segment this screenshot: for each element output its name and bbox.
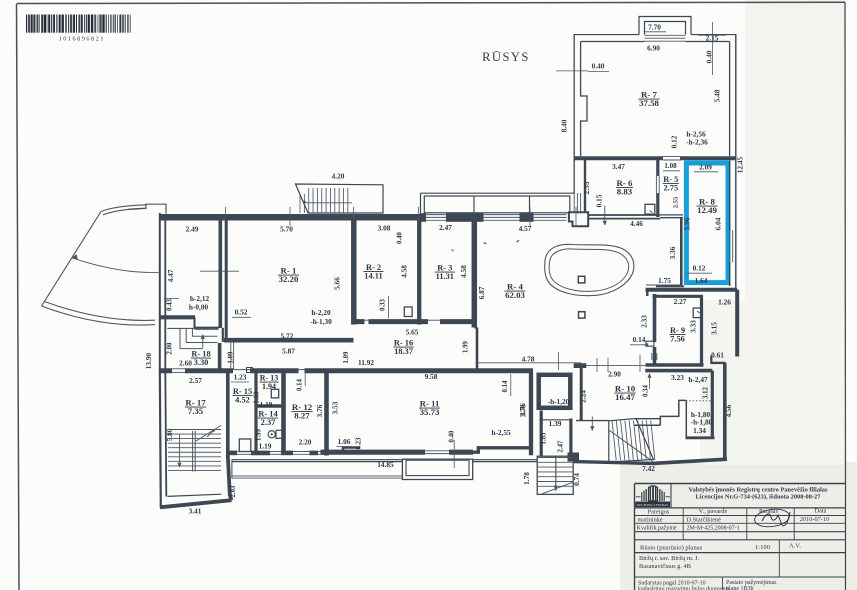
svg-text:1.06: 1.06 xyxy=(338,437,351,446)
svg-text:3.30: 3.30 xyxy=(194,358,209,367)
svg-text:0.33: 0.33 xyxy=(380,298,387,310)
svg-text:7.42: 7.42 xyxy=(642,464,655,473)
svg-text:0.23: 0.23 xyxy=(356,437,363,449)
svg-text:Pareigos: Pareigos xyxy=(648,509,670,516)
svg-text:V., pavardė: V., pavardė xyxy=(699,508,728,515)
svg-text:3.53: 3.53 xyxy=(330,401,339,414)
svg-text:5.87: 5.87 xyxy=(282,347,295,356)
svg-text:3.33: 3.33 xyxy=(689,320,698,333)
svg-text:1.09: 1.09 xyxy=(343,351,350,363)
svg-text:-h-1,30: -h-1,30 xyxy=(310,317,332,326)
svg-text:1.19: 1.19 xyxy=(259,442,272,451)
svg-text:1.75: 1.75 xyxy=(658,276,671,285)
svg-text:-h-2,36: -h-2,36 xyxy=(686,138,708,147)
svg-text:3.47: 3.47 xyxy=(612,162,625,171)
svg-text:Licencijos Nr.G-734-(623), išd: Licencijos Nr.G-734-(623), išduota 2008-… xyxy=(696,493,822,500)
svg-text:2.47: 2.47 xyxy=(558,440,565,452)
svg-text:Rūsio (pusrūsio) planas: Rūsio (pusrūsio) planas xyxy=(640,545,703,552)
svg-text:1.26: 1.26 xyxy=(718,298,731,307)
svg-text:7.70: 7.70 xyxy=(648,23,661,32)
svg-text:14.11: 14.11 xyxy=(364,272,382,281)
svg-text:3.08: 3.08 xyxy=(378,224,391,233)
svg-text:3.23: 3.23 xyxy=(671,373,684,382)
svg-text:5.48: 5.48 xyxy=(713,89,722,102)
svg-text:REGISTRŲ CENTRAS: REGISTRŲ CENTRAS xyxy=(637,503,668,507)
svg-text:5.70: 5.70 xyxy=(280,225,293,234)
svg-text:3.12: 3.12 xyxy=(703,386,710,398)
svg-text:4.56: 4.56 xyxy=(724,404,733,417)
svg-text:0.40: 0.40 xyxy=(592,62,605,71)
svg-text:7.35: 7.35 xyxy=(188,406,204,416)
svg-text:0.61: 0.61 xyxy=(711,351,724,360)
svg-text:2.37: 2.37 xyxy=(261,418,276,427)
svg-text:35.73: 35.73 xyxy=(420,407,440,417)
svg-text:2.20: 2.20 xyxy=(299,438,312,447)
svg-text:A.V.: A.V. xyxy=(789,543,801,550)
svg-text:4.52: 4.52 xyxy=(235,396,250,405)
svg-text:32.20: 32.20 xyxy=(279,274,299,284)
svg-text:2010-07-10: 2010-07-10 xyxy=(800,516,829,523)
svg-text:1.78: 1.78 xyxy=(522,472,531,485)
svg-text:1.34: 1.34 xyxy=(693,426,706,435)
svg-text:0.14: 0.14 xyxy=(297,378,304,390)
svg-text:3.36: 3.36 xyxy=(668,246,677,259)
svg-text:6.90: 6.90 xyxy=(647,44,660,53)
svg-text:2.03: 2.03 xyxy=(230,485,237,497)
svg-text:Biržų r. sav. Biržų m. J.: Biržų r. sav. Biržų m. J. xyxy=(639,555,700,562)
svg-text:1.08: 1.08 xyxy=(664,162,677,170)
svg-text:2.57: 2.57 xyxy=(189,376,202,385)
svg-text:0.14: 0.14 xyxy=(502,380,509,392)
svg-text:11.92: 11.92 xyxy=(358,358,374,367)
svg-text:2.33: 2.33 xyxy=(640,315,649,328)
svg-text:1.23: 1.23 xyxy=(234,373,247,382)
svg-text:2.27: 2.27 xyxy=(674,297,687,306)
svg-text:matininkė: matininkė xyxy=(638,516,663,523)
svg-text:0.52: 0.52 xyxy=(235,308,248,317)
svg-text:0.15: 0.15 xyxy=(595,194,604,207)
svg-text:0.12: 0.12 xyxy=(670,135,679,148)
svg-text:2.75: 2.75 xyxy=(663,184,678,193)
svg-text:-h-1,20: -h-1,20 xyxy=(548,397,570,406)
svg-text:2.90: 2.90 xyxy=(608,370,621,379)
svg-text:6.04: 6.04 xyxy=(714,217,723,230)
svg-text:3.76: 3.76 xyxy=(518,403,527,416)
svg-text:13.90: 13.90 xyxy=(144,352,153,369)
svg-text:2.49: 2.49 xyxy=(186,225,199,234)
svg-text:h-2,55: h-2,55 xyxy=(491,428,511,437)
svg-text:5.72: 5.72 xyxy=(281,332,294,341)
svg-text:2.60: 2.60 xyxy=(179,359,192,368)
svg-text:0.12: 0.12 xyxy=(693,264,706,273)
svg-text:h-2,20: h-2,20 xyxy=(311,308,331,317)
svg-text:4.58: 4.58 xyxy=(459,265,468,278)
svg-text:1 0 1 6 8 9 6 8 2 1: 1 0 1 6 8 9 6 8 2 1 xyxy=(59,36,104,43)
svg-text:18.37: 18.37 xyxy=(394,347,413,356)
svg-text:1.99: 1.99 xyxy=(256,428,263,440)
svg-text:5.65: 5.65 xyxy=(406,328,419,337)
svg-text:0.40: 0.40 xyxy=(397,231,404,243)
svg-text:5.96: 5.96 xyxy=(683,217,692,230)
svg-text:3.15: 3.15 xyxy=(710,322,719,335)
svg-text:11.31: 11.31 xyxy=(436,272,454,281)
svg-text:16.47: 16.47 xyxy=(615,392,635,402)
svg-text:7.56: 7.56 xyxy=(670,335,685,344)
svg-text:Kvalifik.pažymė: Kvalifik.pažymė xyxy=(637,524,677,531)
svg-text:8.27: 8.27 xyxy=(294,411,310,421)
svg-text:Data: Data xyxy=(815,508,827,515)
svg-text:0.74: 0.74 xyxy=(572,473,581,486)
svg-text:0.43: 0.43 xyxy=(166,298,173,310)
svg-text:12.49: 12.49 xyxy=(697,205,717,215)
svg-text:4.57: 4.57 xyxy=(519,224,532,233)
svg-text:plane 1B3b: plane 1B3b xyxy=(726,586,754,590)
svg-text:2.09: 2.09 xyxy=(699,163,712,172)
svg-text:RŪSYS: RŪSYS xyxy=(482,50,530,64)
svg-text:37.58: 37.58 xyxy=(639,98,659,108)
svg-text:2.24: 2.24 xyxy=(579,390,588,403)
svg-text:1.94: 1.94 xyxy=(262,382,276,391)
svg-text:4.47: 4.47 xyxy=(166,269,175,282)
svg-text:2.47: 2.47 xyxy=(439,223,452,232)
svg-text:D.Starčikienė: D.Starčikienė xyxy=(687,516,722,523)
svg-text:2M-M-425,2008-07-1: 2M-M-425,2008-07-1 xyxy=(687,525,740,531)
svg-text:8.83: 8.83 xyxy=(617,187,633,197)
svg-text:62.03: 62.03 xyxy=(505,290,525,300)
svg-text:1.85: 1.85 xyxy=(541,432,548,444)
svg-text:h-2,47: h-2,47 xyxy=(688,375,708,384)
svg-text:5.66: 5.66 xyxy=(333,277,342,290)
svg-text:1.39: 1.39 xyxy=(549,419,562,428)
svg-text:12.45: 12.45 xyxy=(736,156,745,173)
svg-text:1.99: 1.99 xyxy=(463,340,470,352)
svg-text:4.58: 4.58 xyxy=(400,265,409,278)
svg-text:9.58: 9.58 xyxy=(425,372,438,381)
svg-text:3.41: 3.41 xyxy=(189,507,202,516)
svg-text:1.19: 1.19 xyxy=(260,400,273,409)
svg-text:4.78: 4.78 xyxy=(522,355,535,364)
svg-text:1:100: 1:100 xyxy=(755,544,771,551)
svg-text:0.14: 0.14 xyxy=(633,335,646,344)
svg-text:4.20: 4.20 xyxy=(332,172,345,181)
svg-text:kadastrinių matavimų bylos duo: kadastrinių matavimų bylos duomenis xyxy=(638,587,730,590)
svg-text:1.64: 1.64 xyxy=(695,276,708,285)
svg-text:Basanavičiaus g. 4B: Basanavičiaus g. 4B xyxy=(639,563,691,570)
svg-text:8.40: 8.40 xyxy=(560,119,569,132)
svg-text:4.46: 4.46 xyxy=(630,219,643,228)
svg-text:0.34: 0.34 xyxy=(642,384,649,396)
svg-text:0.40: 0.40 xyxy=(705,50,714,63)
svg-text:3.76: 3.76 xyxy=(315,404,324,417)
svg-text:2.00: 2.00 xyxy=(167,342,174,354)
svg-text:h-0,00: h-0,00 xyxy=(189,303,209,312)
svg-text:2.55: 2.55 xyxy=(673,196,680,208)
svg-text:2.55: 2.55 xyxy=(582,181,591,194)
svg-text:6.87: 6.87 xyxy=(477,286,486,299)
